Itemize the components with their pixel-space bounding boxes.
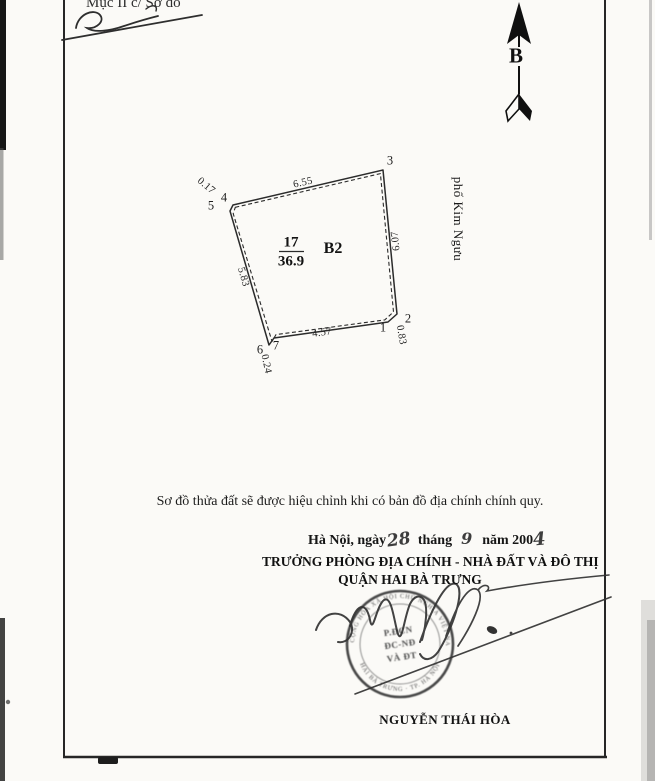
official-stamp: CỘNG HÒA XÃ HỘI CHỦ NGHĨA VIỆT NAM HAI B… <box>0 0 453 697</box>
section-label: Mục II c/ Sơ đồ <box>86 0 181 12</box>
dimension-top: 6.55 <box>292 175 314 190</box>
date-month-label: tháng <box>418 533 452 549</box>
svg-text:HAI BÀ TRƯNG · TP. HÀ NỘI: HAI BÀ TRƯNG · TP. HÀ NỘI <box>358 662 442 693</box>
dimension-bottom: 4.57 <box>312 326 333 340</box>
date-day-handwritten: 28 <box>386 528 412 551</box>
date-year-digit-handwritten: 4 <box>532 528 546 550</box>
scanned-land-plot-document: { "header": { "section_label": "Mục II c… <box>0 0 655 781</box>
authority-title-line1: TRƯỞNG PHÒNG ĐỊA CHÍNH - NHÀ ĐẤT VÀ ĐÔ T… <box>262 554 592 570</box>
dimension-bottom-left-jog: 0.24 <box>259 353 274 374</box>
vertex-label-3: 3 <box>387 154 393 169</box>
chief-signature-scrawl <box>316 575 611 694</box>
parcel-number: 17 <box>284 235 299 252</box>
block-label: B2 <box>324 240 343 258</box>
authority-title-line2: QUẬN HAI BÀ TRƯNG <box>245 572 575 588</box>
document-lineart: CỘNG HÒA XÃ HỘI CHỦ NGHĨA VIỆT NAM HAI B… <box>0 0 655 781</box>
stamp-rim-bottom-text: HAI BÀ TRƯNG · TP. HÀ NỘI <box>358 662 442 693</box>
adjustment-note: Sơ đồ thửa đất sẽ được hiệu chỉnh khi có… <box>150 494 550 510</box>
dimension-right: 6.07 <box>390 231 403 252</box>
vertex-label-4: 4 <box>221 191 227 206</box>
dimension-bottom-right-jog: 0.83 <box>394 324 408 345</box>
street-name-label: phố Kim Ngưu <box>450 177 466 262</box>
vertex-label-7: 7 <box>273 339 279 354</box>
stamp-center-line1: P.ĐCN <box>383 624 413 638</box>
vertex-label-5: 5 <box>208 199 214 214</box>
date-place-prefix: Hà Nội, ngày <box>308 533 386 549</box>
date-year-label: năm 200 <box>482 533 533 549</box>
stamp-center-line2: ĐC-NĐ <box>384 637 417 651</box>
stamp-center-line3: VÀ ĐT <box>386 650 417 664</box>
dimension-top-left-jog: 0.17 <box>195 175 217 196</box>
dimension-left: 5.83 <box>235 266 251 288</box>
parcel-polygon <box>230 170 397 345</box>
document-border <box>63 0 607 764</box>
date-line: Hà Nội, ngày 28 tháng 9 năm 200 4 <box>308 528 546 549</box>
vertex-label-2: 2 <box>405 312 411 327</box>
signer-name: NGUYỄN THÁI HÒA <box>330 712 560 728</box>
scan-artifacts <box>0 0 655 781</box>
parcel-area: 36.9 <box>278 254 304 271</box>
compass-north-label: B <box>509 44 523 69</box>
vertex-label-1: 1 <box>380 321 386 336</box>
date-month-handwritten: 9 <box>461 529 472 548</box>
